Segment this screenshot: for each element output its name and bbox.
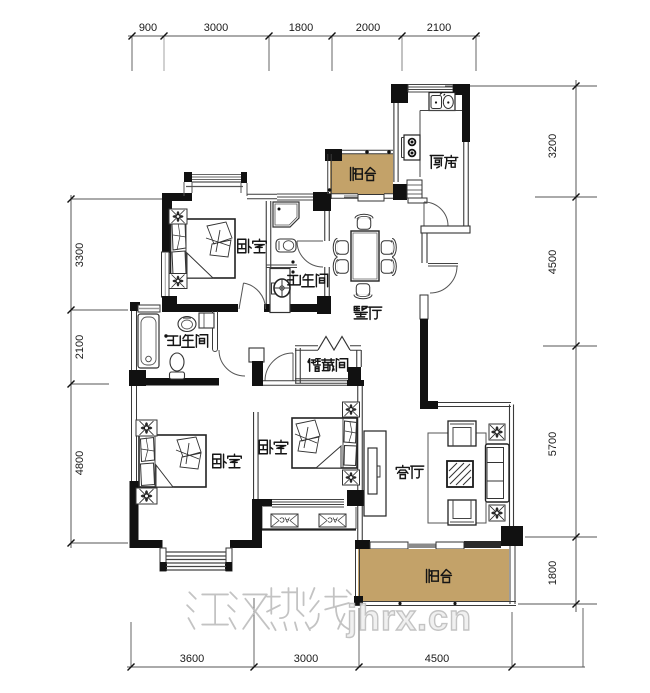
svg-text:2000: 2000 [356,22,380,34]
svg-text:3200: 3200 [547,134,559,158]
svg-text:5700: 5700 [547,432,559,456]
svg-text:3000: 3000 [204,22,228,34]
svg-text:4500: 4500 [425,653,449,665]
svg-text:3000: 3000 [294,653,318,665]
svg-text:2100: 2100 [74,335,86,359]
svg-text:1800: 1800 [289,22,313,34]
svg-text:1800: 1800 [547,561,559,585]
svg-text:AC: AC [327,516,338,525]
svg-text:900: 900 [139,22,157,34]
svg-text:3300: 3300 [74,243,86,267]
svg-text:4500: 4500 [547,250,559,274]
svg-text:AC: AC [279,516,290,525]
svg-text:4800: 4800 [74,451,86,475]
svg-text:2100: 2100 [427,22,451,34]
svg-text:jhrx.cn: jhrx.cn [346,597,472,638]
svg-text:3600: 3600 [180,653,204,665]
